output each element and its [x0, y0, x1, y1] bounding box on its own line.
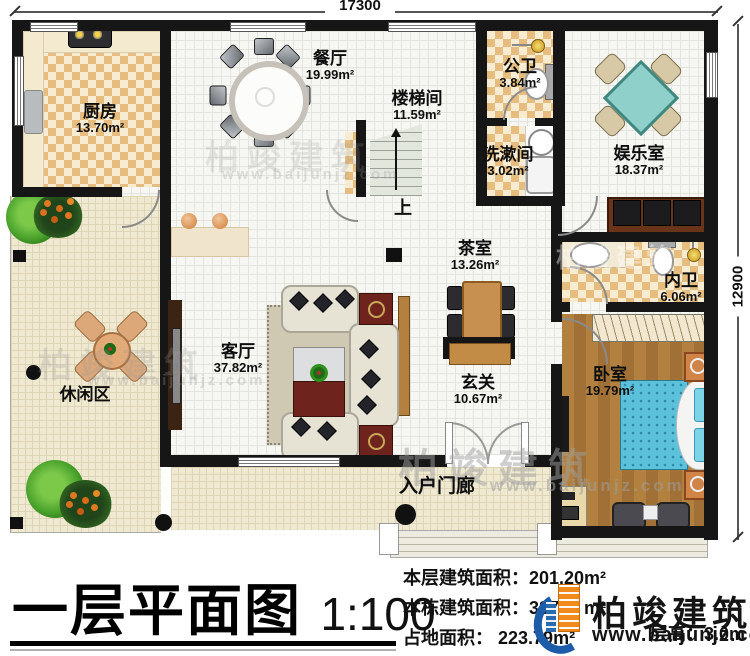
desk-item	[561, 492, 575, 500]
kitchen-sink	[24, 90, 43, 134]
light-cord	[512, 44, 532, 46]
logo-tower-orange	[558, 584, 580, 632]
column	[10, 517, 23, 529]
room-label-tea-room: 茶室 13.26m²	[420, 240, 530, 271]
column	[386, 248, 402, 262]
wardrobe	[592, 314, 706, 342]
wall-kitchen-right	[160, 20, 171, 196]
sofa-cushion	[643, 200, 671, 226]
ceiling-light	[687, 248, 701, 262]
berries	[44, 200, 51, 207]
dimension-top-value: 17300	[325, 0, 395, 14]
logo-tower-blue	[546, 602, 556, 632]
coffee-table-bottom	[293, 381, 345, 417]
stool	[212, 213, 228, 229]
room-label-entertainment: 娱乐室 18.37m²	[584, 145, 694, 176]
window	[706, 52, 718, 98]
room-label-living-room: 客厅 37.82m²	[183, 343, 293, 374]
window	[30, 22, 78, 32]
title-block: 一层平面图 1:100	[12, 566, 436, 647]
bar-counter	[171, 227, 249, 257]
room-label-porch: 入户门廊	[372, 477, 502, 497]
room-label-kitchen: 厨房 13.70m²	[45, 103, 155, 134]
patio-plant	[103, 342, 117, 356]
plant-cluster	[32, 194, 84, 238]
berries	[70, 492, 77, 499]
dining-chair	[210, 86, 227, 106]
floor-plan-page: 厨房 13.70m² 餐厅 19.99m² 楼梯间 11.59m² 公卫 3.8…	[0, 0, 750, 656]
tea-chair	[447, 286, 463, 310]
window	[230, 22, 306, 32]
room-label-ensuite-bath: 内卫 6.06m²	[626, 272, 736, 303]
room-label-foyer: 玄关 10.67m²	[423, 374, 533, 405]
dimension-right-value: 12900	[730, 257, 747, 317]
tea-chair	[447, 314, 463, 338]
wall-top	[12, 20, 718, 31]
room-label-public-bath: 公卫 3.84m²	[465, 58, 575, 89]
title-underline-thin	[10, 649, 396, 651]
room-label-stairwell: 楼梯间 11.59m²	[362, 90, 472, 121]
lamp	[368, 433, 385, 450]
foyer-cabinet	[398, 296, 410, 416]
sideboard-front	[449, 343, 511, 365]
room-label-washroom: 洗漱间 3.02m²	[453, 146, 563, 177]
small-table	[643, 505, 658, 520]
stool	[181, 213, 197, 229]
vanity-sink	[570, 242, 610, 268]
ceiling-light	[531, 39, 545, 53]
tv-screen	[172, 328, 181, 404]
wall-bedroom-bottom	[551, 526, 716, 538]
stairs-arrow	[391, 128, 401, 137]
wall-ensuite-bottom	[551, 302, 570, 312]
plant-cluster	[58, 480, 113, 528]
wall-bath-divider	[535, 118, 553, 126]
column-round	[26, 365, 41, 380]
wall-dining-stair	[356, 120, 366, 197]
stairs-up-label: 上	[388, 199, 418, 218]
room-label-bedroom: 卧室 19.79m²	[555, 366, 665, 397]
wall-kitchen-bottom	[12, 187, 122, 197]
wall-living-bottom	[525, 455, 555, 467]
sofa-cushion	[673, 200, 701, 226]
lamp	[368, 301, 385, 318]
window	[238, 457, 340, 467]
stairs-direction-line	[395, 132, 397, 190]
drawing-scale: 1:100	[320, 588, 435, 640]
entry-door-leaf	[521, 422, 529, 464]
room-label-dining: 餐厅 19.99m²	[275, 50, 385, 81]
page-title: 一层平面图	[12, 579, 302, 642]
column-round	[395, 504, 416, 525]
desk-item	[561, 506, 579, 520]
threshold-checker	[345, 132, 356, 194]
sofa-bottom	[281, 412, 359, 460]
sofa-cushion	[613, 200, 641, 226]
column-round	[155, 514, 172, 531]
dining-table-center	[255, 87, 275, 107]
tea-table	[462, 281, 502, 345]
porch-pillar	[379, 523, 399, 555]
title-underline-thick	[10, 641, 396, 646]
plant	[310, 364, 328, 382]
brand-website: www.baijunjz.com	[592, 624, 750, 647]
entry-door-leaf	[445, 422, 453, 464]
window	[14, 56, 24, 126]
window	[388, 22, 476, 32]
wall-entertainment-bottom	[557, 232, 715, 242]
column	[13, 250, 26, 262]
brand-logo-icon	[534, 582, 590, 646]
room-label-leisure: 休闲区	[30, 386, 140, 404]
dining-chair	[254, 38, 274, 55]
